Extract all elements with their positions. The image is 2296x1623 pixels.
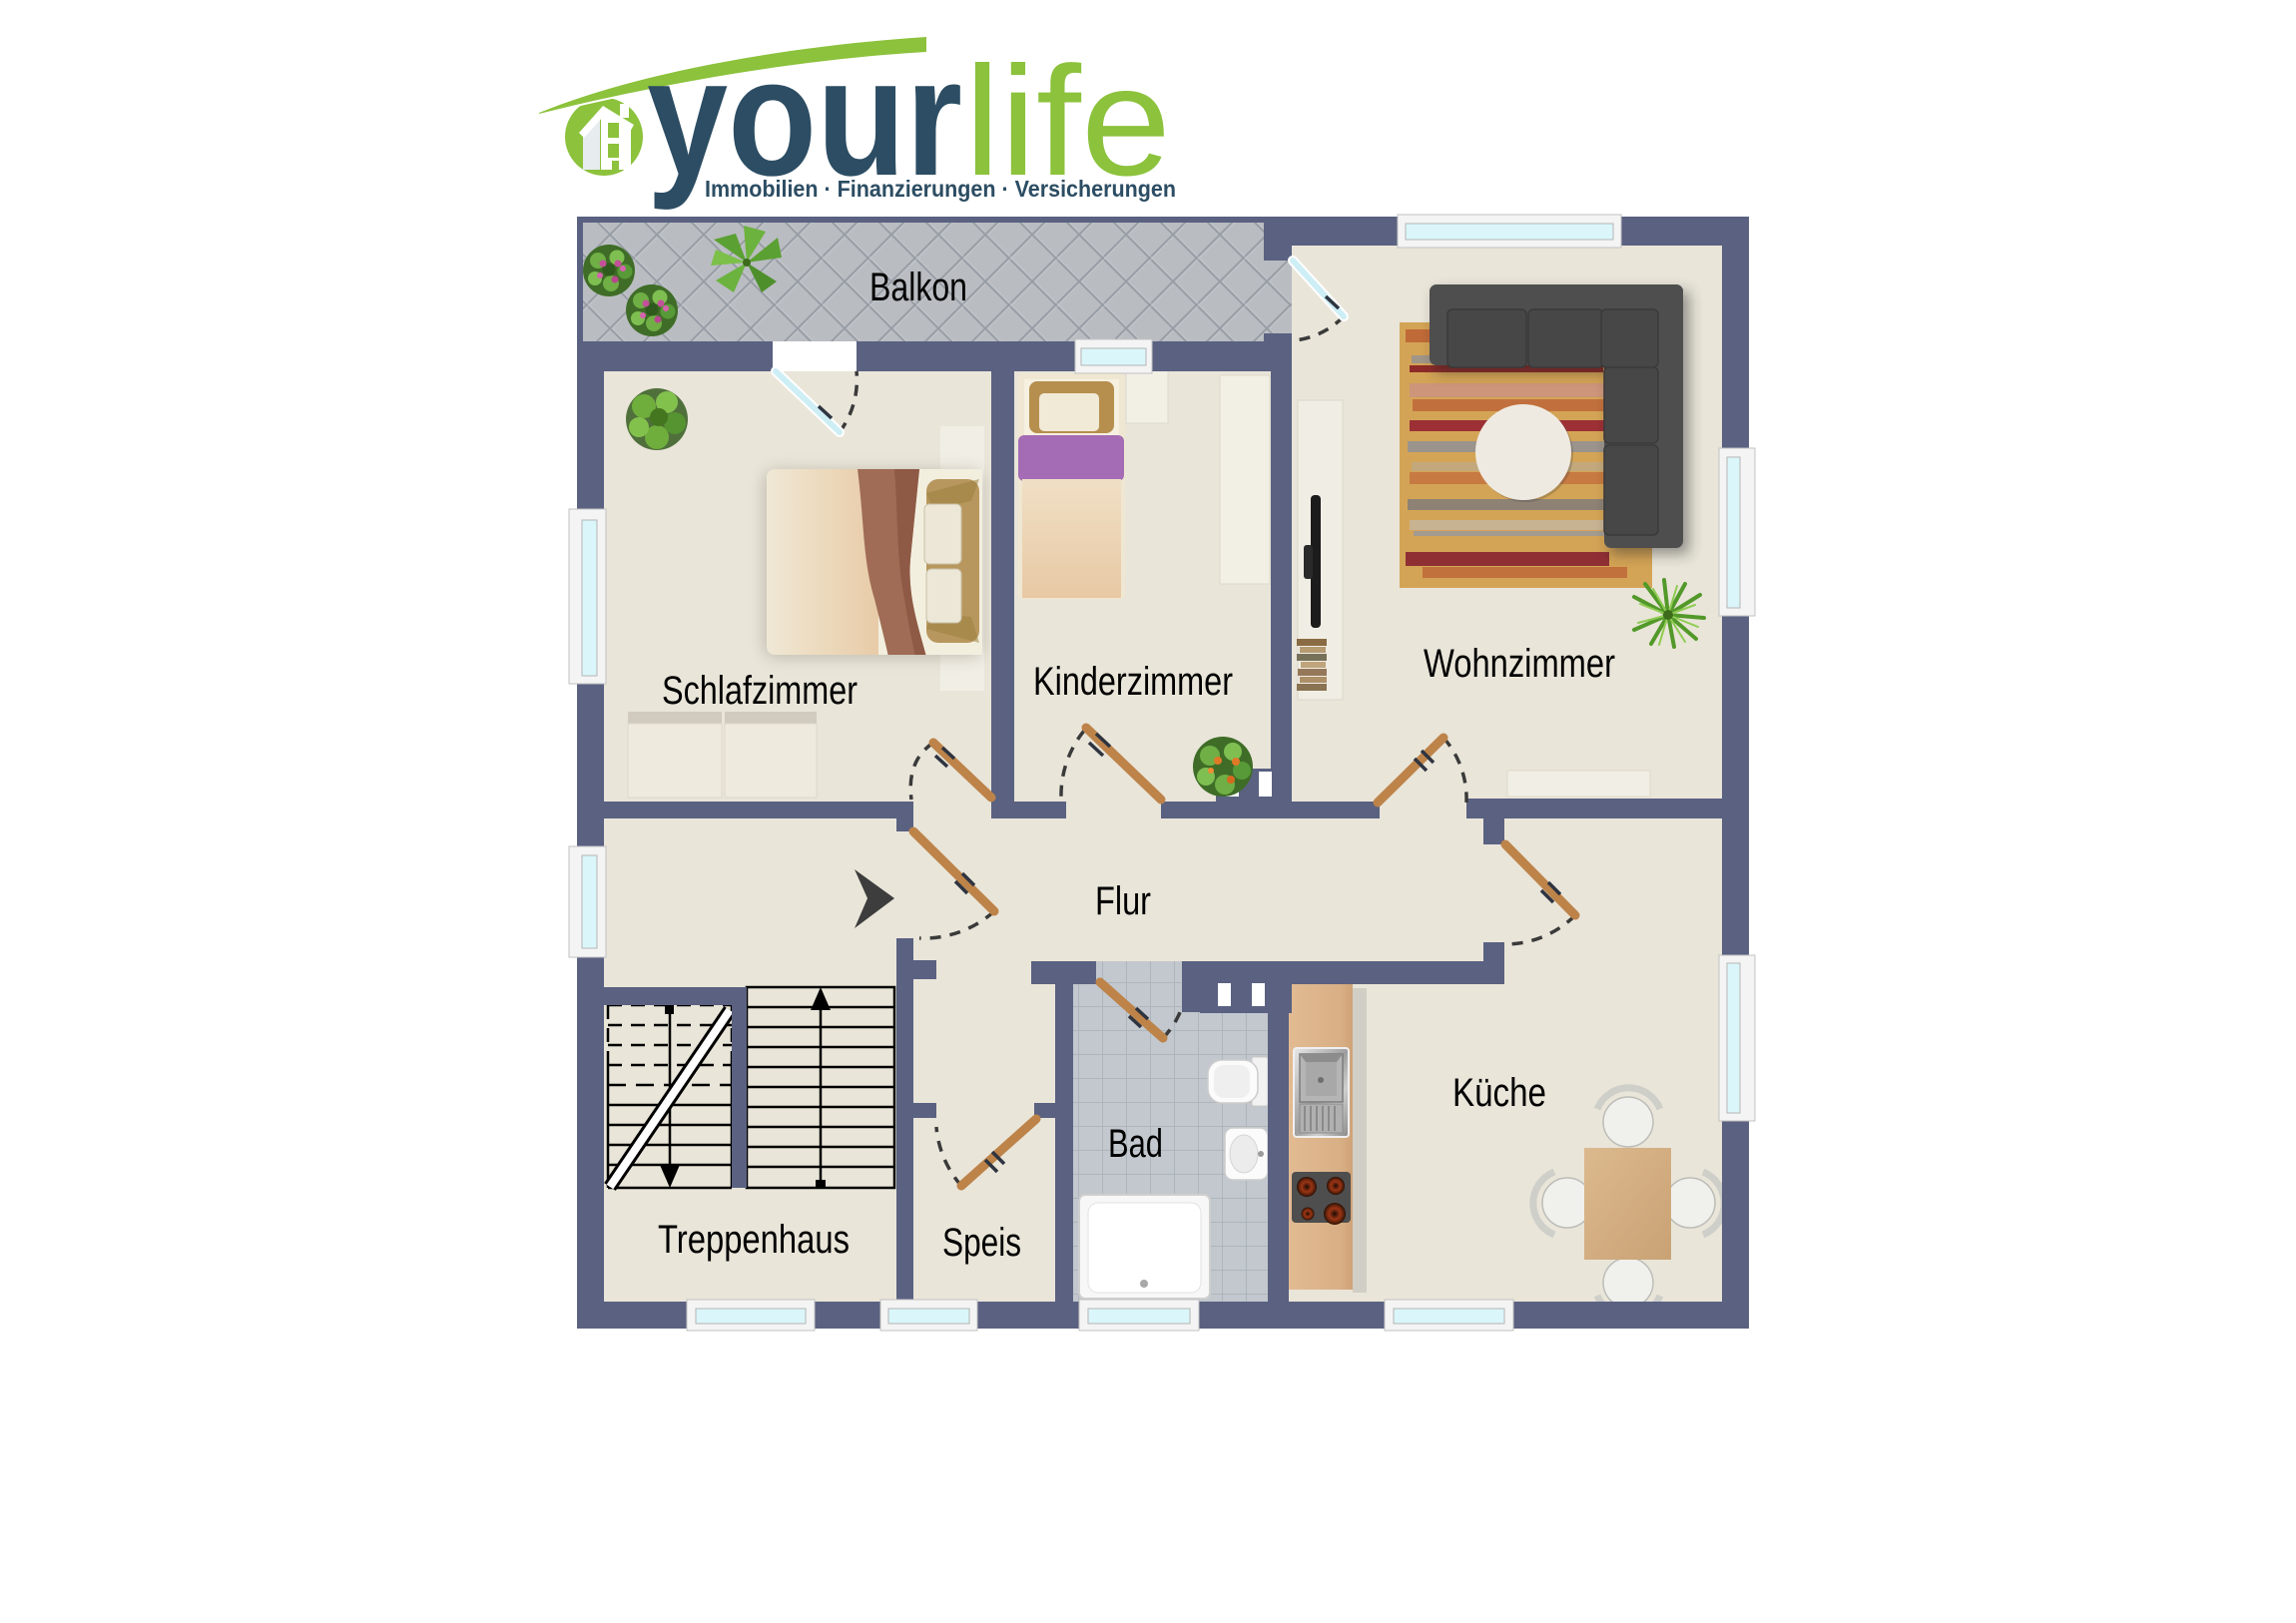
svg-text:Immobilien · Finanzierungen ·: Immobilien · Finanzierungen · Versicheru… xyxy=(705,176,1176,202)
svg-text:Bad: Bad xyxy=(1108,1122,1163,1166)
svg-text:Treppenhaus: Treppenhaus xyxy=(658,1218,850,1262)
svg-text:Küche: Küche xyxy=(1452,1071,1546,1115)
svg-text:Wohnzimmer: Wohnzimmer xyxy=(1424,642,1615,686)
svg-text:Schlafzimmer: Schlafzimmer xyxy=(662,669,858,713)
svg-text:Balkon: Balkon xyxy=(869,266,967,309)
svg-text:Speis: Speis xyxy=(942,1221,1021,1265)
svg-text:Kinderzimmer: Kinderzimmer xyxy=(1033,660,1233,704)
svg-text:Flur: Flur xyxy=(1095,879,1151,923)
